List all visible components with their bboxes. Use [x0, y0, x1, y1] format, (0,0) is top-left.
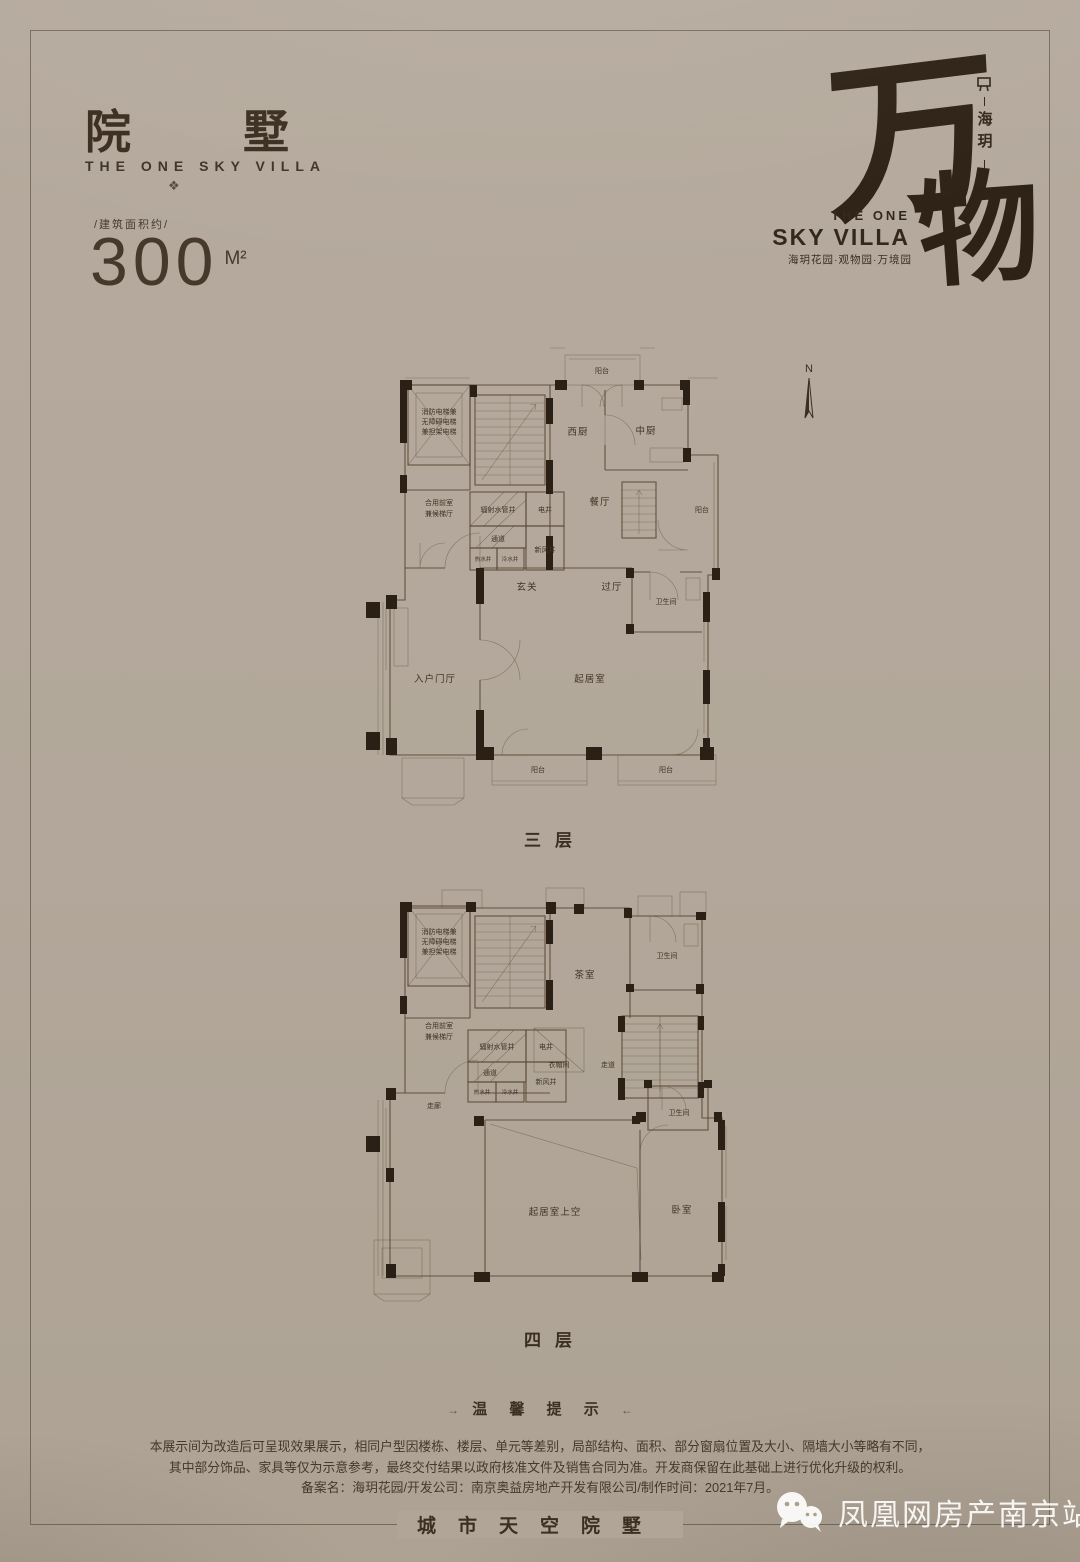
brand-vertical-column: 海玥	[972, 76, 996, 169]
room-label-elevator-2: 无障碍电梯	[422, 937, 457, 946]
room-label-living-void: 起居室上空	[529, 1206, 582, 1218]
room-label-chinese-kitchen: 中厨	[635, 425, 656, 437]
room-label-lobby-1: 合用前室	[425, 498, 453, 507]
page-title: 院墅	[85, 96, 303, 162]
room-label-west-kitchen: 西厨	[567, 427, 588, 438]
room-label-cold-water: 冷水井	[502, 555, 519, 563]
room-label-elevator-3: 兼担架电梯	[422, 947, 457, 956]
room-label-tea-room: 茶室	[574, 969, 595, 981]
floor-plan-4f: 消防电梯兼 无障碍电梯 兼担架电梯 合用前室 兼候梯厅 辐射水管井 电井 通道 …	[350, 868, 1050, 1358]
brand-en-line2: SKY VILLA	[772, 224, 910, 251]
room-label-pipe-shaft: 辐射水管井	[480, 1042, 515, 1051]
room-label-bathroom: 卫生间	[656, 597, 677, 606]
room-label-entry-hall: 入户门厅	[414, 673, 456, 685]
wechat-icon	[772, 1489, 828, 1535]
notice-title: 温 馨 提 示	[472, 1401, 608, 1418]
room-label-aisle: 走道	[601, 1060, 615, 1069]
room-label-balcony-br: 阳台	[659, 765, 673, 774]
room-label-balcony-top: 阳台	[595, 366, 609, 375]
area-value: 300	[90, 228, 218, 296]
page-subtitle-en: THE ONE SKY VILLA	[85, 158, 315, 174]
room-label-balcony-right: 阳台	[695, 505, 709, 514]
room-label-foyer: 玄关	[516, 581, 537, 593]
room-label-cloakroom: 衣帽间	[549, 1060, 570, 1069]
brand-en-line1: THE ONE	[778, 208, 910, 223]
arrow-left-icon: ←	[621, 1403, 633, 1417]
ornament-icon: ❖	[168, 178, 180, 194]
room-label-bathroom-top: 卫生间	[657, 951, 678, 960]
room-label-fresh-air: 新风井	[536, 1077, 557, 1086]
area-row: 300 M²	[90, 228, 247, 296]
brand-name-vertical: 海玥	[974, 111, 995, 155]
footer-slogan: 城市天空院墅	[397, 1511, 683, 1538]
room-label-cold-water: 冷水井	[502, 1088, 519, 1096]
room-label-passage: 通道	[491, 534, 505, 543]
room-label-corridor: 走廊	[427, 1101, 441, 1110]
room-label-passage: 通道	[483, 1068, 497, 1077]
calligraphy-char-wu: 物	[914, 164, 1044, 294]
room-label-fresh-air: 新风井	[535, 545, 556, 554]
poster-page: 院墅 THE ONE SKY VILLA ❖ /建筑面积约/ 300 M² 万 …	[0, 0, 1080, 1562]
room-label-dining: 餐厅	[589, 496, 610, 508]
room-label-elevator-2: 无障碍电梯	[422, 417, 457, 426]
room-label-lobby-1: 合用前室	[425, 1021, 453, 1030]
room-label-hallway: 过厅	[601, 581, 622, 593]
room-label-bedroom: 卧室	[671, 1204, 692, 1216]
room-label-lobby-2: 兼候梯厅	[425, 509, 453, 518]
disclaimer-line: 本展示间为改造后可呈现效果展示，相同户型因楼栋、楼层、单元等差别，局部结构、面积…	[110, 1437, 970, 1458]
room-label-balcony-bl: 阳台	[531, 765, 545, 774]
room-label-elevator-1: 消防电梯兼	[422, 927, 457, 936]
room-label-elevator-1: 消防电梯兼	[422, 407, 457, 416]
room-label-hot-water: 热水井	[474, 1088, 491, 1096]
room-label-hot-water: 热水井	[475, 555, 492, 563]
room-label-elevator-3: 兼担架电梯	[422, 427, 457, 436]
floor-plan-3f: 阳台 消防电梯兼 无障碍电梯 兼担架电梯 合用前室 兼候梯厅 辐射水管井 电井 …	[350, 340, 1050, 840]
arrow-right-icon: →	[447, 1403, 459, 1417]
room-label-electric-shaft: 电井	[539, 1042, 553, 1051]
area-unit: M²	[224, 248, 246, 270]
watermark: 凤凰网房产南京站	[772, 1489, 1080, 1535]
divider-dash	[984, 97, 985, 106]
divider-dash	[984, 160, 985, 169]
plan-caption-4f: 四层	[0, 1326, 1080, 1351]
room-label-pipe-shaft: 辐射水管井	[481, 505, 516, 514]
plan-caption-3f: 三层	[0, 826, 1080, 851]
brand-seal-icon	[976, 76, 992, 92]
room-label-living: 起居室	[574, 673, 606, 685]
room-label-bathroom-bottom: 卫生间	[669, 1108, 690, 1117]
disclaimer-line: 其中部分饰品、家具等仅为示意参考，最终交付结果以政府核准文件及销售合同为准。开发…	[110, 1458, 970, 1479]
notice-title-row: → 温 馨 提 示 ←	[0, 1398, 1080, 1419]
brand-subtitle-cn: 海玥花园·观物园·万境园	[770, 252, 912, 267]
room-label-lobby-2: 兼候梯厅	[425, 1032, 453, 1041]
room-label-electric-shaft: 电井	[538, 505, 552, 514]
watermark-text: 凤凰网房产南京站	[838, 1490, 1080, 1534]
